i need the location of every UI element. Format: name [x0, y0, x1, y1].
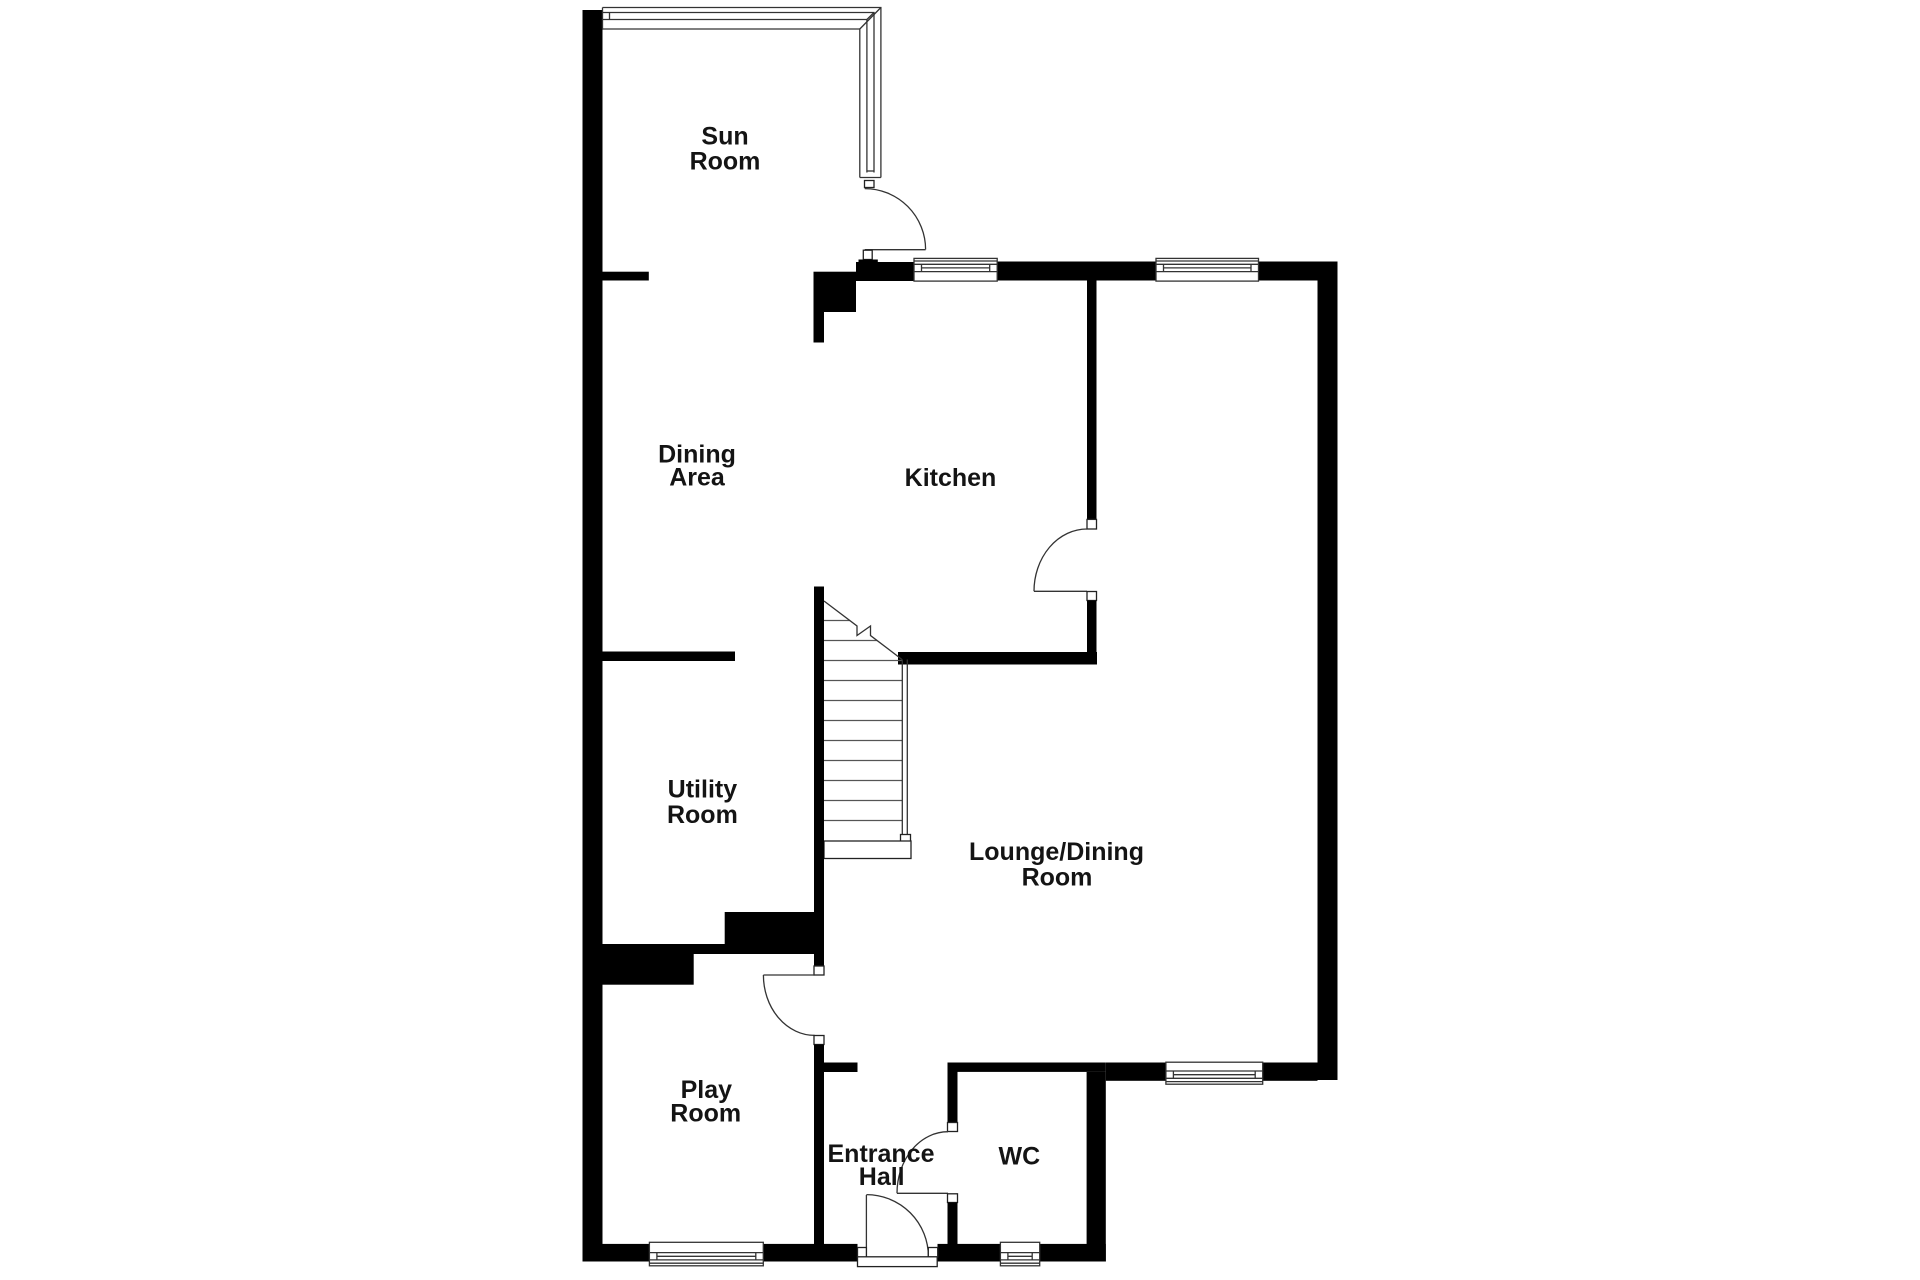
- svg-text:Hall: Hall: [859, 1163, 905, 1191]
- svg-text:Sun: Sun: [701, 123, 748, 151]
- svg-text:Room: Room: [1022, 863, 1093, 891]
- svg-text:Lounge/Dining: Lounge/Dining: [969, 838, 1144, 866]
- svg-text:Kitchen: Kitchen: [905, 464, 997, 492]
- svg-text:Room: Room: [690, 147, 761, 175]
- svg-text:Room: Room: [667, 801, 738, 829]
- svg-text:Utility: Utility: [668, 776, 738, 804]
- svg-text:Area: Area: [669, 464, 726, 492]
- svg-text:WC: WC: [998, 1143, 1040, 1171]
- svg-text:Room: Room: [670, 1099, 741, 1127]
